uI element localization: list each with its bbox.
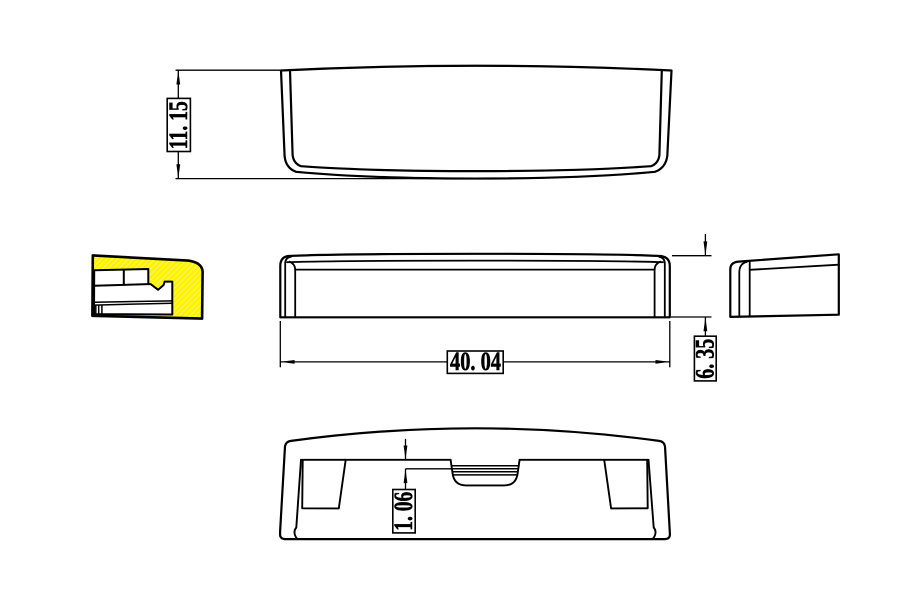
svg-text:6. 35: 6. 35 (691, 339, 720, 379)
svg-text:11. 15: 11. 15 (164, 101, 193, 149)
svg-text:40. 04: 40. 04 (450, 347, 501, 376)
svg-text:1. 06: 1. 06 (389, 492, 418, 531)
